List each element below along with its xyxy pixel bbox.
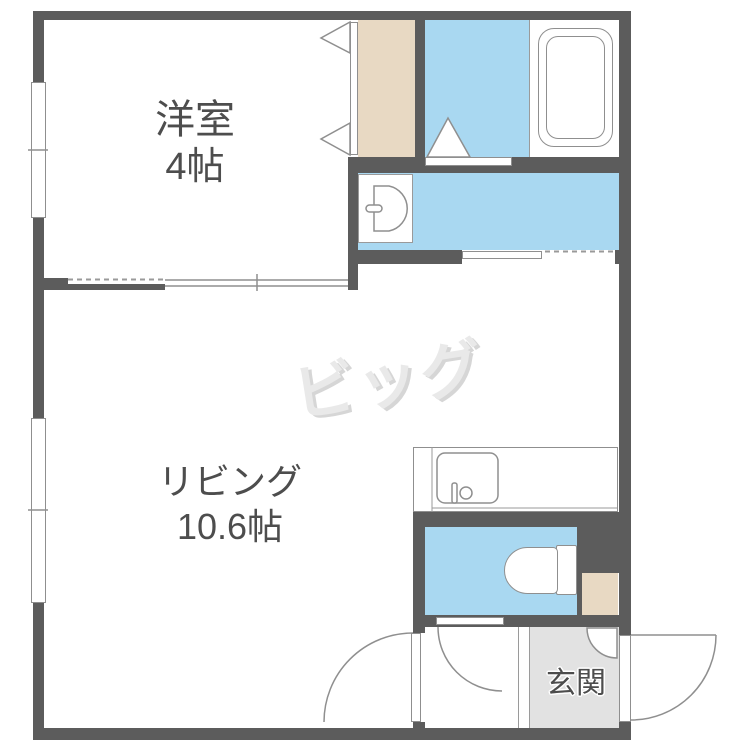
kitchen-faucet-bar [452, 483, 457, 503]
living-room-name: リビング [105, 459, 355, 504]
entrance-closet-door-arc [587, 628, 617, 658]
western-room-size: 4帖 [95, 144, 295, 191]
floor-plan: ビッグ [0, 0, 750, 750]
living-room-size: 10.6帖 [105, 504, 355, 549]
toilet-door-arc [438, 627, 502, 691]
washroom-bifold-icon [427, 118, 470, 157]
washbasin-faucet [366, 205, 382, 212]
living-room-label: リビング 10.6帖 [105, 459, 355, 549]
western-room-label: 洋室 4帖 [95, 97, 295, 191]
closet-bifold-icon-top [321, 22, 350, 53]
entrance-label: 玄関 [526, 658, 626, 702]
entrance-door-arc [631, 635, 716, 720]
closet-bifold-icon-bottom [321, 123, 350, 155]
kitchen-faucet-knob [460, 487, 472, 499]
corridor-door-arc [324, 633, 413, 722]
western-room-name: 洋室 [95, 97, 295, 144]
